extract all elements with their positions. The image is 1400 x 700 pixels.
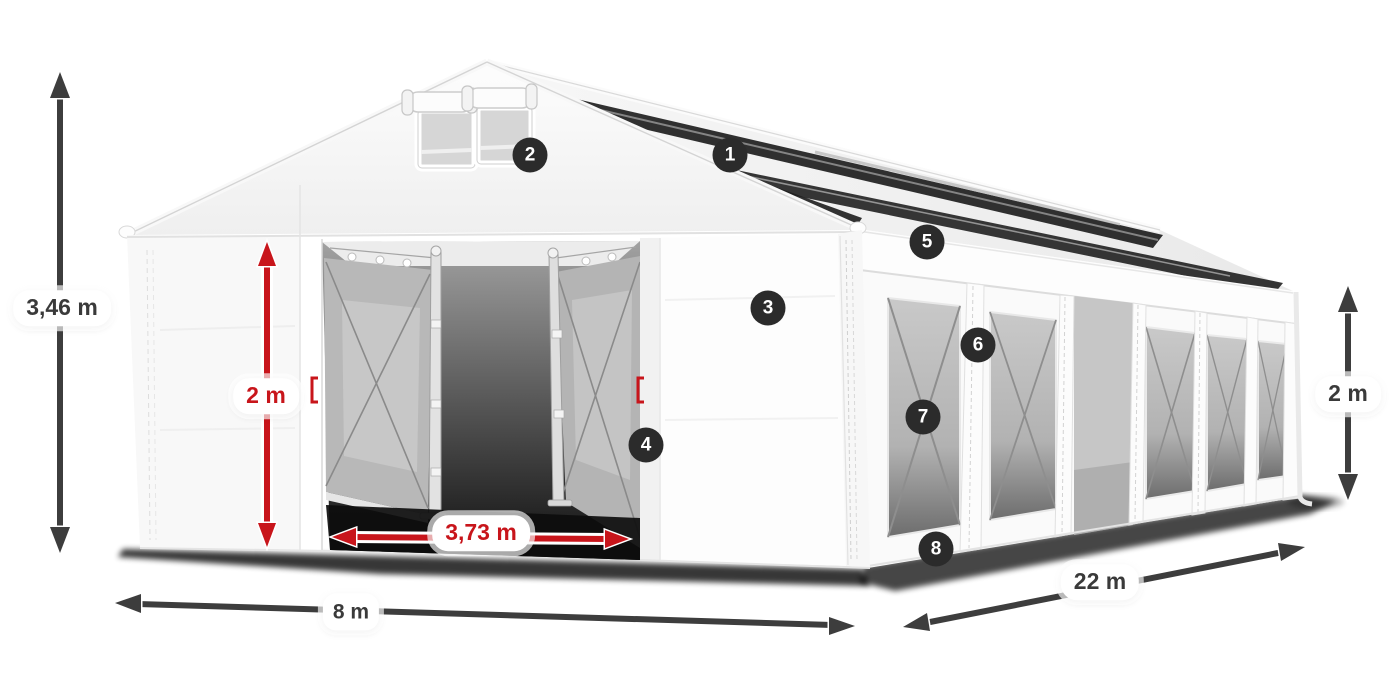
callout-badge-6[interactable]: 6 bbox=[961, 328, 996, 363]
right-door-panel bbox=[638, 234, 846, 566]
side-window bbox=[1258, 341, 1287, 480]
door-opening bbox=[322, 241, 640, 560]
tent-dimension-diagram: 3,46 m 2 m 3,73 m 8 m 22 m 2 m 1 2 3 4 5… bbox=[0, 0, 1400, 700]
arrow-front-width bbox=[115, 594, 855, 635]
dimension-label-door-height: 2 m bbox=[233, 378, 299, 414]
left-door-edge bbox=[300, 185, 322, 551]
tent-illustration bbox=[0, 0, 1400, 700]
dimension-label-door-width: 3,73 m bbox=[432, 515, 530, 551]
dimension-label-side-length: 22 m bbox=[1061, 564, 1139, 600]
callout-badge-3[interactable]: 3 bbox=[751, 291, 786, 326]
callout-badge-7[interactable]: 7 bbox=[906, 400, 941, 435]
callout-badge-5[interactable]: 5 bbox=[910, 225, 945, 260]
callout-badge-2[interactable]: 2 bbox=[513, 138, 548, 173]
dimension-label-side-height: 2 m bbox=[1315, 376, 1381, 412]
callout-badge-8[interactable]: 8 bbox=[919, 532, 954, 567]
side-window bbox=[990, 312, 1056, 520]
side-window bbox=[1207, 335, 1247, 491]
vent-window-left bbox=[418, 110, 475, 168]
callout-badge-1[interactable]: 1 bbox=[713, 138, 748, 173]
dimension-label-total-height: 3,46 m bbox=[13, 290, 111, 326]
front-wall bbox=[127, 185, 870, 568]
dimension-label-front-width: 8 m bbox=[323, 593, 379, 630]
side-window bbox=[1146, 327, 1195, 499]
callout-badge-4[interactable]: 4 bbox=[629, 428, 664, 463]
